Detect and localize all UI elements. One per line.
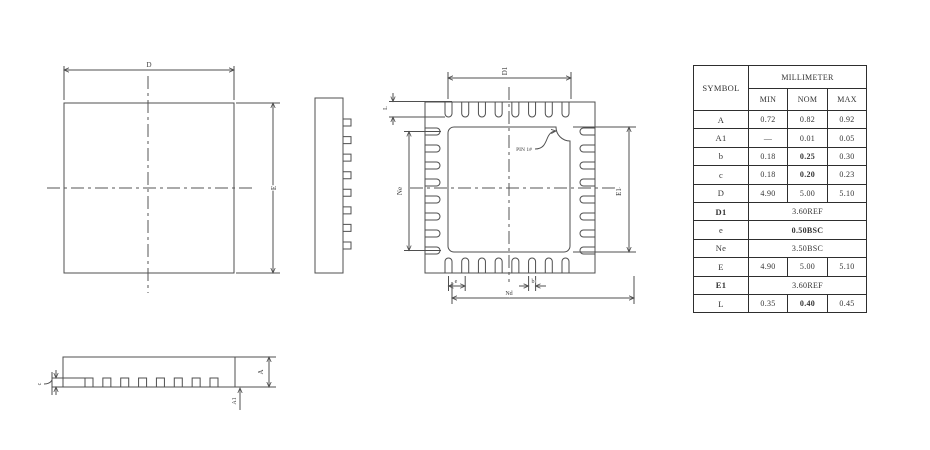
symbol-cell: L xyxy=(694,294,749,312)
pad-outline xyxy=(562,258,569,273)
package-outline-drawing-sheet: D E D1 Ne E1 Nd xyxy=(0,0,930,450)
nom-cell: 0.25 xyxy=(788,147,828,165)
bottom-view-drawing: D1 Ne E1 Nd e b L PIN 1# xyxy=(383,66,636,304)
dim-label-pitch-e: e xyxy=(455,279,458,285)
dim-extension-lines xyxy=(404,132,441,251)
package-side-outline xyxy=(315,98,343,273)
max-cell: 0.92 xyxy=(828,111,867,129)
dim-label-a1: A1 xyxy=(232,397,238,404)
pad-outline xyxy=(478,258,485,273)
side-view-pads xyxy=(343,119,351,249)
pad-outline xyxy=(425,230,440,237)
pad-outline xyxy=(580,213,595,220)
nom-cell: 0.82 xyxy=(788,111,828,129)
pad-outline xyxy=(462,102,469,117)
profile-view-pads xyxy=(85,378,218,387)
pad-outline xyxy=(192,378,200,387)
pad-outline xyxy=(210,378,218,387)
span-value-cell: 3.60REF xyxy=(749,276,867,294)
table-row: e 0.50BSC xyxy=(694,221,867,239)
span-value-cell: 3.60REF xyxy=(749,202,867,220)
pad-outline xyxy=(139,378,147,387)
pad-outline xyxy=(562,102,569,117)
nom-cell: 0.20 xyxy=(788,166,828,184)
pad-outline xyxy=(343,242,351,249)
dim-label-e1: E1 xyxy=(615,188,623,196)
dim-label-l: L xyxy=(383,106,389,110)
dim-label-c: c xyxy=(37,382,43,385)
table-row: E 4.90 5.00 5.10 xyxy=(694,258,867,276)
dim-label-nd: Nd xyxy=(505,291,512,297)
pad-outline xyxy=(343,119,351,126)
min-cell: 0.35 xyxy=(749,294,788,312)
symbol-cell: E xyxy=(694,258,749,276)
header-min: MIN xyxy=(749,89,788,111)
min-cell: 0.72 xyxy=(749,111,788,129)
pad-outline xyxy=(343,224,351,231)
symbol-cell: A1 xyxy=(694,129,749,147)
pad-outline xyxy=(156,378,164,387)
pad-outline xyxy=(512,102,519,117)
min-cell: 0.18 xyxy=(749,147,788,165)
header-symbol: SYMBOL xyxy=(694,66,749,111)
pad-outline xyxy=(174,378,182,387)
table-row: E1 3.60REF xyxy=(694,276,867,294)
pad-outline xyxy=(85,378,93,387)
pad-outline xyxy=(343,207,351,214)
nom-cell: 0.40 xyxy=(788,294,828,312)
pad-outline xyxy=(529,102,536,117)
max-cell: 0.23 xyxy=(828,166,867,184)
package-profile-outline xyxy=(63,357,235,387)
pad-outline xyxy=(343,137,351,144)
symbol-cell: A xyxy=(694,111,749,129)
dim-extension-lines xyxy=(52,372,85,395)
pin1-leader-line xyxy=(535,131,556,149)
table-row: D 4.90 5.00 5.10 xyxy=(694,184,867,202)
max-cell: 5.10 xyxy=(828,184,867,202)
dim-extension-lines xyxy=(452,276,634,304)
pad-outline xyxy=(425,162,440,169)
table-header-row: SYMBOL MILLIMETER xyxy=(694,66,867,89)
header-millimeter: MILLIMETER xyxy=(749,66,867,89)
symbol-cell: D xyxy=(694,184,749,202)
table-row: c 0.18 0.20 0.23 xyxy=(694,166,867,184)
table-row: A1 — 0.01 0.05 xyxy=(694,129,867,147)
pad-outline xyxy=(343,154,351,161)
pad-outline xyxy=(343,172,351,179)
max-cell: 0.30 xyxy=(828,147,867,165)
pad-outline xyxy=(545,102,552,117)
dim-label-d: D xyxy=(146,61,151,69)
pad-outline xyxy=(445,258,452,273)
pad-outline xyxy=(580,247,595,254)
symbol-cell: D1 xyxy=(694,202,749,220)
pin1-label: PIN 1# xyxy=(516,147,532,153)
side-view-drawing xyxy=(315,98,351,273)
header-max: MAX xyxy=(828,89,867,111)
pad-outline xyxy=(121,378,129,387)
table-row: Ne 3.50BSC xyxy=(694,239,867,257)
pad-outline xyxy=(545,258,552,273)
pad-outline xyxy=(425,145,440,152)
nom-cell: 5.00 xyxy=(788,184,828,202)
min-cell: — xyxy=(749,129,788,147)
table-row: b 0.18 0.25 0.30 xyxy=(694,147,867,165)
pad-outline xyxy=(495,258,502,273)
symbol-cell: E1 xyxy=(694,276,749,294)
top-view-drawing: D E xyxy=(47,61,280,293)
pad-outline xyxy=(445,102,452,117)
pad-outline xyxy=(580,179,595,186)
min-cell: 4.90 xyxy=(749,258,788,276)
pad-outline xyxy=(512,258,519,273)
pad-outline xyxy=(425,196,440,203)
dim-label-b: b xyxy=(532,279,535,285)
max-cell: 0.05 xyxy=(828,129,867,147)
dim-extension-lines xyxy=(64,66,234,100)
pad-outline xyxy=(580,145,595,152)
pad-outline xyxy=(580,196,595,203)
pad-outline xyxy=(529,258,536,273)
dim-label-a: A xyxy=(257,369,265,374)
max-cell: 5.10 xyxy=(828,258,867,276)
pad-outline xyxy=(495,102,502,117)
pad-outline xyxy=(580,162,595,169)
min-cell: 0.18 xyxy=(749,166,788,184)
header-nom: NOM xyxy=(788,89,828,111)
table-row: A 0.72 0.82 0.92 xyxy=(694,111,867,129)
pad-outline xyxy=(103,378,111,387)
dim-extension-lines xyxy=(389,102,452,118)
min-cell: 4.90 xyxy=(749,184,788,202)
pad-outline xyxy=(343,189,351,196)
pad-outline xyxy=(580,230,595,237)
span-value-cell: 3.50BSC xyxy=(749,239,867,257)
dim-label-e: E xyxy=(270,186,278,190)
dimension-table: SYMBOL MILLIMETER MIN NOM MAX A 0.72 0.8… xyxy=(693,65,867,313)
symbol-cell: e xyxy=(694,221,749,239)
pad-outline xyxy=(478,102,485,117)
pad-outline xyxy=(425,213,440,220)
nom-cell: 0.01 xyxy=(788,129,828,147)
max-cell: 0.45 xyxy=(828,294,867,312)
dim-extension-lines xyxy=(573,127,636,252)
dim-leader-c xyxy=(44,380,52,384)
pad-outline xyxy=(462,258,469,273)
dim-label-ne: Ne xyxy=(396,187,404,195)
symbol-cell: c xyxy=(694,166,749,184)
pad-outline xyxy=(580,128,595,135)
nom-cell: 5.00 xyxy=(788,258,828,276)
symbol-cell: b xyxy=(694,147,749,165)
dim-label-d1: D1 xyxy=(501,66,509,75)
pad-outline xyxy=(425,179,440,186)
dim-extension-lines xyxy=(235,357,276,387)
table-row: L 0.35 0.40 0.45 xyxy=(694,294,867,312)
symbol-cell: Ne xyxy=(694,239,749,257)
table-row: D1 3.60REF xyxy=(694,202,867,220)
span-value-cell: 0.50BSC xyxy=(749,221,867,239)
side-profile-drawing: A A1 c xyxy=(37,357,276,410)
